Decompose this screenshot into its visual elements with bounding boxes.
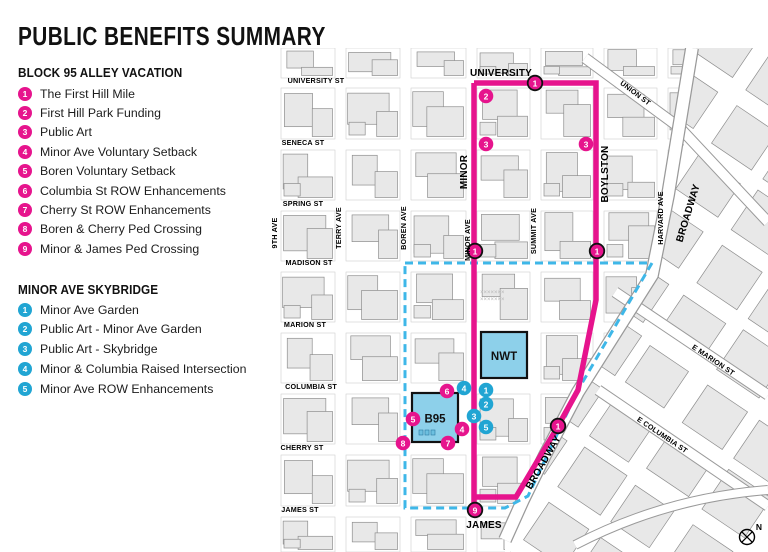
legend-item-minor-columbia-raised-intersection: 4Minor & Columbia Raised Intersection (18, 359, 246, 378)
street-label-minor-ave: MINOR AVE (463, 219, 472, 261)
legend-item-minor-ave-garden: 1Minor Ave Garden (18, 300, 139, 319)
legend-item-boren-cherry-ped-crossing: 8Boren & Cherry Ped Crossing (18, 220, 202, 239)
street-label-boren-ave: BOREN AVE (399, 206, 408, 250)
legend-item-number-badge: 4 (18, 362, 32, 376)
map-marker-pink-3: 3 (579, 137, 594, 152)
street-label-seneca-st: SENECA ST (282, 138, 325, 147)
map-marker-pink-7: 7 (441, 436, 456, 451)
legend-item-label: The First Hill Mile (40, 87, 135, 101)
street-label-marion-st: MARION ST (284, 320, 327, 329)
svg-text:3: 3 (484, 139, 489, 149)
legend-item-number-badge: 5 (18, 164, 32, 178)
map-marker-pink-5: 5 (406, 412, 421, 427)
svg-text:2: 2 (484, 399, 489, 409)
map: ××××××××××××××NWTB95123311654781941235UN… (260, 48, 768, 552)
legend-item-cherry-st-row-enhancements: 7Cherry St ROW Enhancements (18, 200, 211, 219)
compass-north-label: N (756, 522, 762, 532)
street-label-boylston: BOYLSTON (600, 146, 611, 203)
street-label-columbia-st: COLUMBIA ST (285, 382, 337, 391)
map-marker-pink-1: 1 (551, 419, 566, 434)
map-marker-pink-2: 2 (479, 89, 494, 104)
map-marker-pink-8: 8 (396, 436, 411, 451)
map-marker-teal-2: 2 (479, 397, 494, 412)
svg-text:4: 4 (462, 383, 467, 393)
legend-item-label: Cherry St ROW Enhancements (40, 203, 211, 217)
legend-item-number-badge: 1 (18, 303, 32, 317)
legend-item-label: Boren Voluntary Setback (40, 164, 175, 178)
street-label-9th-ave: 9TH AVE (270, 218, 279, 249)
legend-item-number-badge: 3 (18, 125, 32, 139)
legend-item-label: Columbia St ROW Enhancements (40, 184, 226, 198)
legend-item-minor-ave-voluntary-setback: 4Minor Ave Voluntary Setback (18, 142, 197, 161)
map-marker-pink-9: 9 (468, 503, 483, 518)
street-label-cherry-st: CHERRY ST (281, 443, 324, 452)
legend-item-number-badge: 3 (18, 342, 32, 356)
highlight-building-label: NWT (491, 351, 517, 363)
map-marker-pink-1: 1 (590, 244, 605, 259)
legend-item-label: Minor & Columbia Raised Intersection (40, 362, 246, 376)
street-label-summit-ave: SUMMIT AVE (529, 208, 538, 254)
legend-item-label: First Hill Park Funding (40, 106, 161, 120)
svg-text:7: 7 (446, 438, 451, 448)
legend-item-public-art: 3Public Art (18, 123, 92, 142)
map-marker-teal-3: 3 (467, 409, 482, 424)
svg-text:×××××××: ××××××× (480, 290, 505, 296)
highlight-building-nwt: NWT (481, 332, 527, 378)
legend-item-label: Minor Ave ROW Enhancements (40, 382, 213, 396)
legend-item-label: Minor & James Ped Crossing (40, 242, 199, 256)
legend-item-public-art-skybridge: 3Public Art - Skybridge (18, 340, 158, 359)
street-label-university: UNIVERSITY (470, 68, 532, 79)
street-map-svg: ××××××××××××××NWTB95123311654781941235UN… (260, 48, 768, 552)
legend-item-number-badge: 7 (18, 203, 32, 217)
legend-item-number-badge: 5 (18, 382, 32, 396)
street-label-spring-st: SPRING ST (283, 199, 324, 208)
svg-text:5: 5 (484, 422, 489, 432)
legend-item-number-badge: 1 (18, 87, 32, 101)
street-label-terry-ave: TERRY AVE (334, 207, 343, 249)
legend-item-number-badge: 2 (18, 106, 32, 120)
legend-item-number-badge: 8 (18, 222, 32, 236)
legend-item-minor-ave-row-enhancements: 5Minor Ave ROW Enhancements (18, 379, 213, 398)
svg-text:4: 4 (460, 424, 465, 434)
legend-item-label: Boren & Cherry Ped Crossing (40, 222, 202, 236)
svg-text:×××××××: ××××××× (480, 297, 505, 303)
street-label-madison-st: MADISON ST (285, 258, 333, 267)
legend-item-label: Public Art - Minor Ave Garden (40, 322, 202, 336)
svg-text:1: 1 (595, 246, 600, 256)
highlight-building-label: B95 (424, 414, 446, 426)
svg-text:3: 3 (472, 411, 477, 421)
legend-heading-minor-ave-skybridge: MINOR AVE SKYBRIDGE (18, 283, 158, 297)
svg-text:1: 1 (473, 246, 478, 256)
legend-item-label: Public Art - Skybridge (40, 342, 158, 356)
legend-item-label: Minor Ave Garden (40, 303, 139, 317)
street-label-james: JAMES (466, 520, 502, 531)
svg-text:2: 2 (484, 91, 489, 101)
street-label-minor: MINOR (459, 154, 470, 189)
legend-item-number-badge: 4 (18, 145, 32, 159)
map-marker-pink-6: 6 (440, 384, 455, 399)
map-marker-teal-4: 4 (457, 381, 472, 396)
street-label-james-st: JAMES ST (281, 505, 319, 514)
svg-text:1: 1 (484, 385, 489, 395)
map-marker-pink-4: 4 (455, 422, 470, 437)
alley-hatch: ×××××××××××××× (480, 290, 505, 303)
svg-text:5: 5 (411, 414, 416, 424)
legend-item-minor-james-ped-crossing: 9Minor & James Ped Crossing (18, 239, 199, 258)
svg-text:1: 1 (533, 78, 538, 88)
legend-item-number-badge: 2 (18, 322, 32, 336)
svg-text:1: 1 (556, 421, 561, 431)
legend-item-number-badge: 9 (18, 242, 32, 256)
legend-heading-block-95-alley-vacation: BLOCK 95 ALLEY VACATION (18, 66, 182, 80)
legend-item-label: Public Art (40, 125, 92, 139)
svg-text:3: 3 (584, 139, 589, 149)
svg-text:8: 8 (401, 438, 406, 448)
legend-item-boren-voluntary-setback: 5Boren Voluntary Setback (18, 162, 175, 181)
map-marker-teal-1: 1 (479, 383, 494, 398)
street-label-university-st: UNIVERSITY ST (288, 76, 345, 85)
svg-text:9: 9 (473, 505, 478, 515)
svg-text:6: 6 (445, 386, 450, 396)
legend-item-label: Minor Ave Voluntary Setback (40, 145, 197, 159)
map-marker-pink-3: 3 (479, 137, 494, 152)
legend-item-public-art-minor-ave-garden: 2Public Art - Minor Ave Garden (18, 320, 202, 339)
legend-item-number-badge: 6 (18, 184, 32, 198)
street-label-harvard-ave: HARVARD AVE (656, 191, 665, 244)
map-marker-teal-5: 5 (479, 420, 494, 435)
page: { "title": "PUBLIC BENEFITS SUMMARY", "c… (0, 0, 768, 552)
legend-item-the-first-hill-mile: 1The First Hill Mile (18, 84, 135, 103)
legend-item-columbia-st-row-enhancements: 6Columbia St ROW Enhancements (18, 181, 226, 200)
legend-item-first-hill-park-funding: 2First Hill Park Funding (18, 103, 161, 122)
